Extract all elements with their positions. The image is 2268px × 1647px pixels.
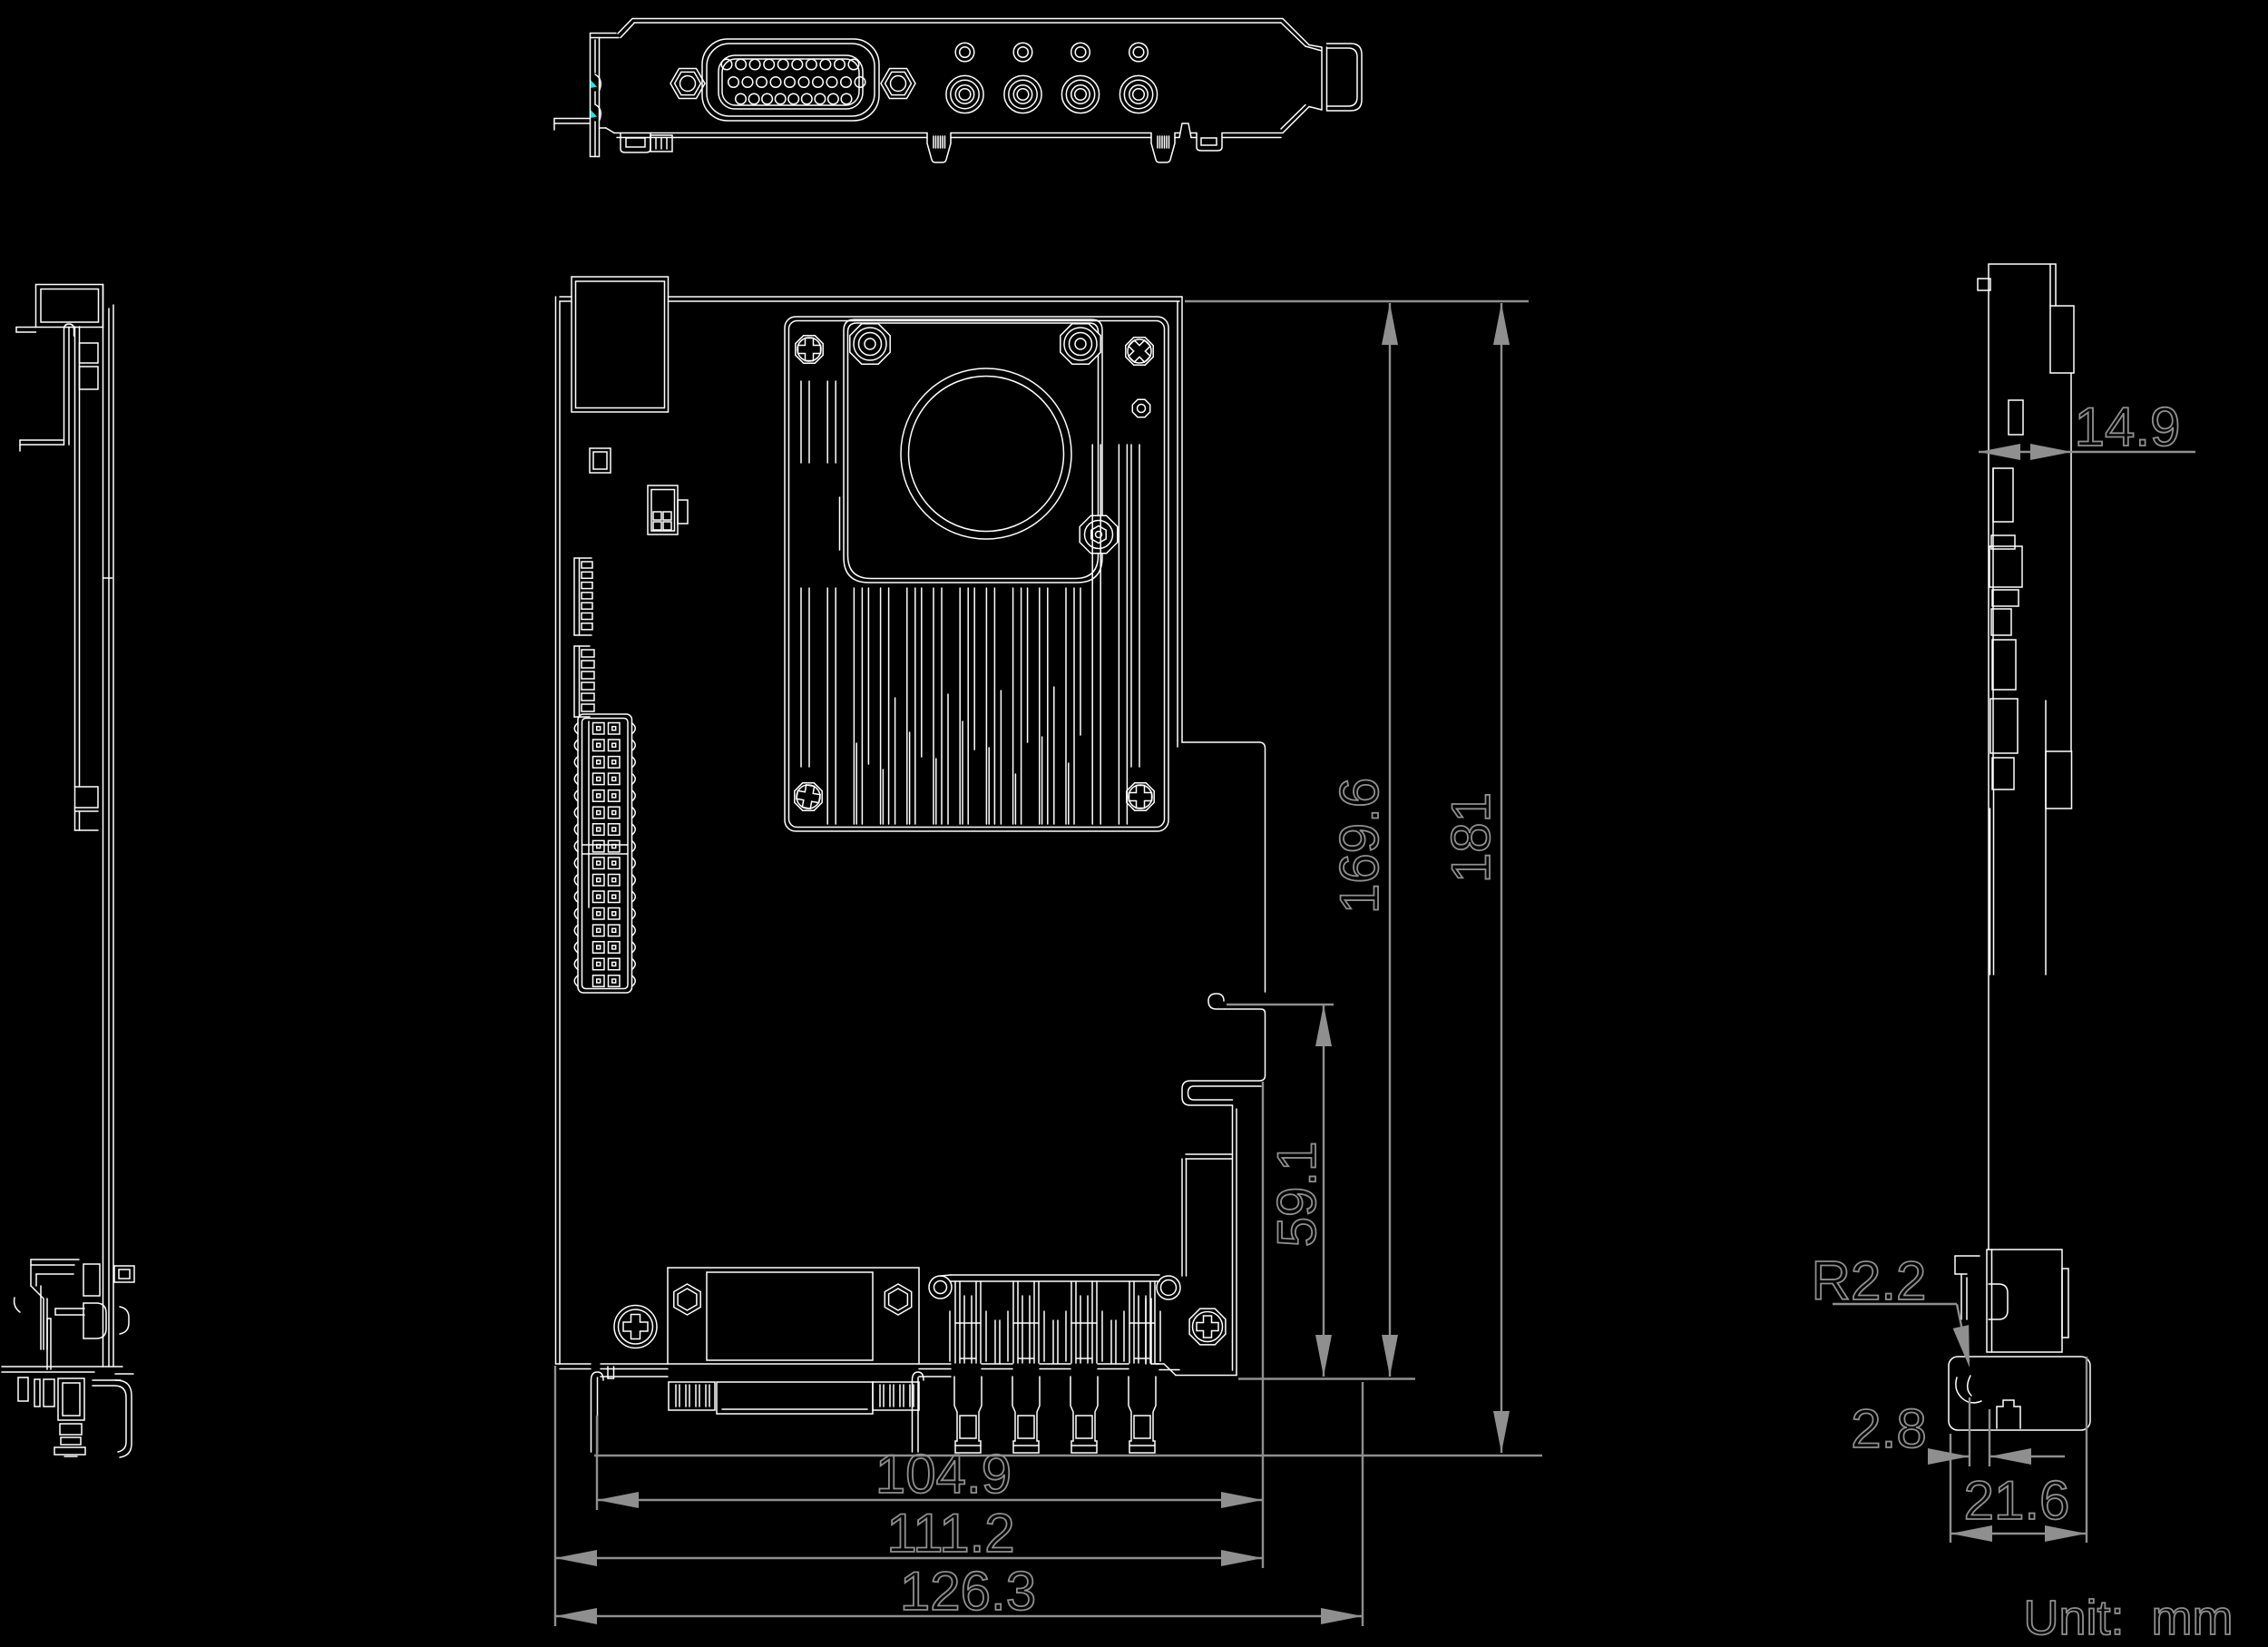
svg-text:R2.2: R2.2 <box>1812 1250 1927 1311</box>
svg-text:126.3: 126.3 <box>900 1561 1036 1622</box>
svg-text:104.9: 104.9 <box>875 1444 1012 1505</box>
svg-text:169.6: 169.6 <box>1329 778 1390 914</box>
svg-text:14.9: 14.9 <box>2075 397 2181 457</box>
svg-text:59.1: 59.1 <box>1266 1142 1327 1248</box>
svg-text:111.2: 111.2 <box>886 1503 1014 1564</box>
svg-text:2.8: 2.8 <box>1851 1398 1926 1459</box>
svg-text:Unit: mm: Unit: mm <box>2023 1591 2233 1645</box>
svg-text:21.6: 21.6 <box>1964 1470 2070 1531</box>
svg-text:181: 181 <box>1441 792 1501 883</box>
